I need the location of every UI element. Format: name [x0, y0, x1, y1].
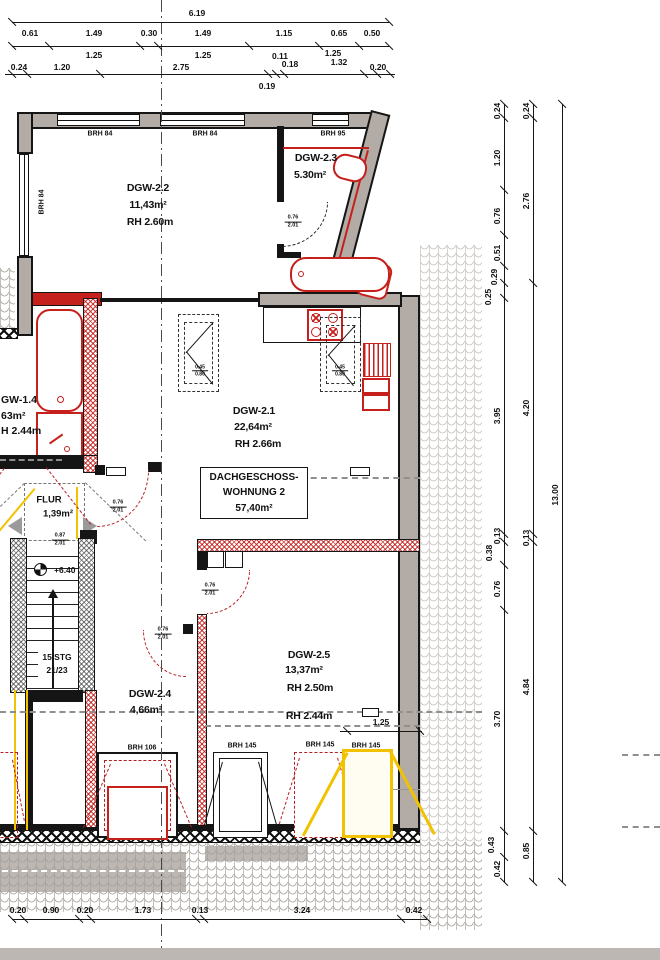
kitchen-unit-2 — [362, 394, 390, 411]
window-top-2 — [160, 114, 245, 126]
wall-hatch-dgw14 — [83, 298, 98, 460]
dim-label-1.25: 1.25 — [195, 51, 212, 60]
door-arc-flur-right — [97, 470, 149, 527]
skylight-size-2: 0.450.80 — [332, 364, 348, 378]
dim-label-4.84: 4.84 — [522, 679, 531, 696]
centerline — [161, 0, 162, 948]
roof-gray-bar-2 — [205, 846, 308, 861]
wall-flur-top — [0, 455, 85, 469]
dim-line — [533, 104, 534, 882]
closet-1 — [207, 551, 224, 568]
dim-label-3.95: 3.95 — [493, 408, 502, 425]
bath-red-line-top — [283, 147, 369, 149]
bathtub-dgw14-drain — [57, 396, 64, 403]
dim-label-2.76: 2.76 — [522, 193, 531, 210]
dim-line — [562, 104, 563, 882]
dim-label-0.65: 0.65 — [331, 29, 348, 38]
dash-line-symbol-1 — [106, 467, 126, 476]
dim-label-0.13: 0.13 — [493, 528, 502, 545]
room-dgw22-height: RH 2.60m — [127, 217, 173, 228]
bathtub — [290, 257, 390, 292]
dim-label-1.73: 1.73 — [135, 906, 152, 915]
dim-label-0.29: 0.29 — [490, 269, 499, 286]
shower-drain — [64, 446, 70, 452]
room-dgw24-name: DGW-2.4 — [129, 689, 171, 700]
dim-label-1.20: 1.20 — [493, 150, 502, 167]
room-dgw23-area: 5.30m² — [294, 170, 326, 181]
window-label-top-3: BRH 95 — [321, 131, 346, 138]
dim-line — [5, 74, 395, 75]
dim-label-1.49: 1.49 — [86, 29, 103, 38]
door-size-flur-bottom: 0.872.01 — [52, 533, 69, 548]
dim-label-0.18: 0.18 — [282, 60, 299, 69]
wall-mid-vertical — [197, 614, 207, 826]
window-label-left: BRH 84 — [39, 190, 46, 215]
window-top-1 — [57, 114, 140, 126]
roof-dash-line-eave — [0, 711, 482, 713]
door-size-dgw25: 0.762.01 — [202, 583, 219, 598]
dash-line-symbol-2 — [350, 467, 370, 476]
dim-label-0.13: 0.13 — [522, 530, 531, 547]
title-line-2: WOHNUNG 2 — [223, 485, 285, 501]
room-dgw14-area: 63m² — [1, 411, 26, 422]
room-dgw14-height: H 2.44m — [1, 426, 41, 437]
kitchen-unit-1 — [362, 378, 390, 394]
dim-label-6.19: 6.19 — [189, 9, 206, 18]
dim-label-2.75: 2.75 — [173, 63, 190, 72]
dim-label-0.42: 0.42 — [406, 906, 423, 915]
dim-label-1.49: 1.49 — [195, 29, 212, 38]
dim-label-0.61: 0.61 — [22, 29, 39, 38]
dim-line — [12, 22, 389, 23]
dim-label-0.13: 0.13 — [192, 906, 209, 915]
dim-label-1.32: 1.32 — [331, 58, 348, 67]
wall-stub-mid — [197, 551, 207, 570]
dim-label-3.24: 3.24 — [294, 906, 311, 915]
door-size-dgw24: 0.762.01 — [155, 627, 172, 642]
stair-wall-left — [10, 538, 27, 693]
door-dash-flur-a — [0, 468, 5, 525]
level-marker-text: +6.40 — [54, 566, 76, 575]
wall-bath-stub-h — [277, 252, 301, 258]
dim-label-0.85: 0.85 — [522, 843, 531, 860]
section-arrow-left — [8, 517, 22, 535]
dim-label-0.20: 0.20 — [370, 63, 387, 72]
level-marker-symbol — [34, 563, 47, 576]
dim-label-1.25: 1.25 — [373, 718, 390, 727]
dim-label-4.20: 4.20 — [522, 400, 531, 417]
closet-2 — [225, 551, 243, 568]
window-label-bottom-1: BRH 106 — [128, 745, 157, 752]
roof-tiles-bottom-right — [420, 842, 482, 930]
bathtub-drain — [298, 271, 304, 277]
room-dgw14-name: GW-1.4 — [1, 395, 37, 406]
room-dgw25-area: 13,37m² — [285, 665, 323, 676]
room-dgw22-name: DGW-2.2 — [127, 183, 169, 194]
stair-wall-right — [78, 538, 95, 693]
wall-left-post-top — [17, 112, 33, 154]
dormer-brh106-inner — [107, 786, 168, 840]
roof-dashed-line — [2, 870, 184, 872]
floor-plan-sheet: DACHGESCHOSS- WOHNUNG 2 57,40m² BRH 84BR… — [0, 0, 660, 960]
dim-label-13.00: 13.00 — [551, 484, 560, 505]
room-dgw22-area: 11,43m² — [129, 200, 166, 211]
page-edge-bottom — [0, 948, 660, 960]
insulation-strip-left — [0, 328, 18, 339]
room-flur-area: 1,39m² — [43, 509, 73, 519]
dim-line — [12, 919, 427, 920]
room-dgw21-area: 22,64m² — [234, 422, 272, 433]
wall-stub-door — [148, 462, 162, 472]
dim-label-1.15: 1.15 — [276, 29, 293, 38]
dim-label-0.30: 0.30 — [141, 29, 158, 38]
roof-dash-line-top-right — [290, 477, 420, 479]
window-label-bottom-4: BRH 145 — [352, 743, 381, 750]
dim-label-0.20: 0.20 — [77, 906, 94, 915]
window-label-bottom-2: BRH 145 — [228, 743, 257, 750]
door-size-flur-right: 0.762.01 — [110, 500, 127, 515]
dim-label-0.50: 0.50 — [364, 29, 381, 38]
dash-right-edge-1 — [622, 754, 660, 756]
window-top-3 — [312, 114, 349, 126]
dim-label-0.24: 0.24 — [522, 103, 531, 120]
dash-right-edge-2 — [622, 826, 660, 828]
dim-label-0.76: 0.76 — [493, 581, 502, 598]
window-label-bottom-3: BRH 145 — [306, 742, 335, 749]
dash-line-symbol-3 — [362, 708, 379, 717]
wall-dgw22-bottom — [100, 298, 260, 302]
room-dgw25-height: RH 2.50m — [287, 683, 333, 694]
dim-label-3.70: 3.70 — [493, 711, 502, 728]
dormer-yellow-frame — [342, 749, 393, 838]
room-dgw21-height: RH 2.66m — [235, 439, 281, 450]
window-label-top-1: BRH 84 — [88, 131, 113, 138]
room-dgw21-name: DGW-2.1 — [233, 406, 275, 417]
dormer-brh145-1-sash — [219, 758, 262, 832]
dim-label-0.20: 0.20 — [10, 906, 27, 915]
dim-label-0.90: 0.90 — [43, 906, 60, 915]
skylight-size-1: 0.450.80 — [192, 364, 208, 378]
roof-tiles-right — [420, 245, 482, 845]
dim-label-0.76: 0.76 — [493, 208, 502, 225]
room-dgw24-area: 4,66m² — [130, 705, 162, 716]
title-line-1: DACHGESCHOSS- — [210, 470, 299, 486]
roof-dash-line-top-left — [0, 459, 62, 461]
dim-label-0.43: 0.43 — [487, 837, 496, 854]
dim-label-1.25: 1.25 — [86, 51, 103, 60]
room-dgw25-name: DGW-2.5 — [288, 650, 330, 661]
window-left — [19, 154, 29, 256]
brick-patch-left — [0, 268, 15, 328]
stairs-count: 15 STG — [42, 653, 71, 662]
dim-label-0.19: 0.19 — [259, 82, 276, 91]
dim-label-1.20: 1.20 — [54, 63, 71, 72]
burner-cross-1 — [312, 314, 320, 322]
dim-label-0.24: 0.24 — [493, 103, 502, 120]
stairs-ratio: 21/23 — [46, 666, 67, 675]
dormer-partial-left — [0, 752, 18, 838]
room-flur-name: FLUR — [36, 495, 61, 505]
room-dgw25-height2: RH 2.44m — [286, 711, 332, 722]
wall-bath-divider — [277, 126, 284, 202]
dim-label-0.25: 0.25 — [484, 289, 493, 306]
wall-left-post-2 — [17, 256, 33, 336]
wall-right — [398, 295, 420, 830]
stair-wall-bottom-bar — [25, 690, 83, 702]
dim-line — [504, 104, 505, 882]
title-line-3: 57,40m² — [235, 501, 272, 517]
dormer-brh145-2-frame — [294, 752, 343, 838]
dim-label-0.24: 0.24 — [11, 63, 28, 72]
dim-label-0.38: 0.38 — [485, 545, 494, 562]
dim-label-0.42: 0.42 — [493, 861, 502, 878]
apartment-title-box: DACHGESCHOSS- WOHNUNG 2 57,40m² — [200, 467, 308, 519]
room-dgw23-name: DGW-2.3 — [295, 153, 337, 164]
radiator — [363, 343, 391, 377]
door-size-bath: 0.762.01 — [285, 215, 302, 230]
dim-line — [340, 731, 422, 732]
flur-yellow-line-2 — [76, 487, 78, 539]
roof-gray-bar-1 — [0, 852, 186, 892]
window-label-top-2: BRH 84 — [193, 131, 218, 138]
stair-direction-arrow — [48, 589, 58, 598]
dim-label-0.51: 0.51 — [493, 245, 502, 262]
